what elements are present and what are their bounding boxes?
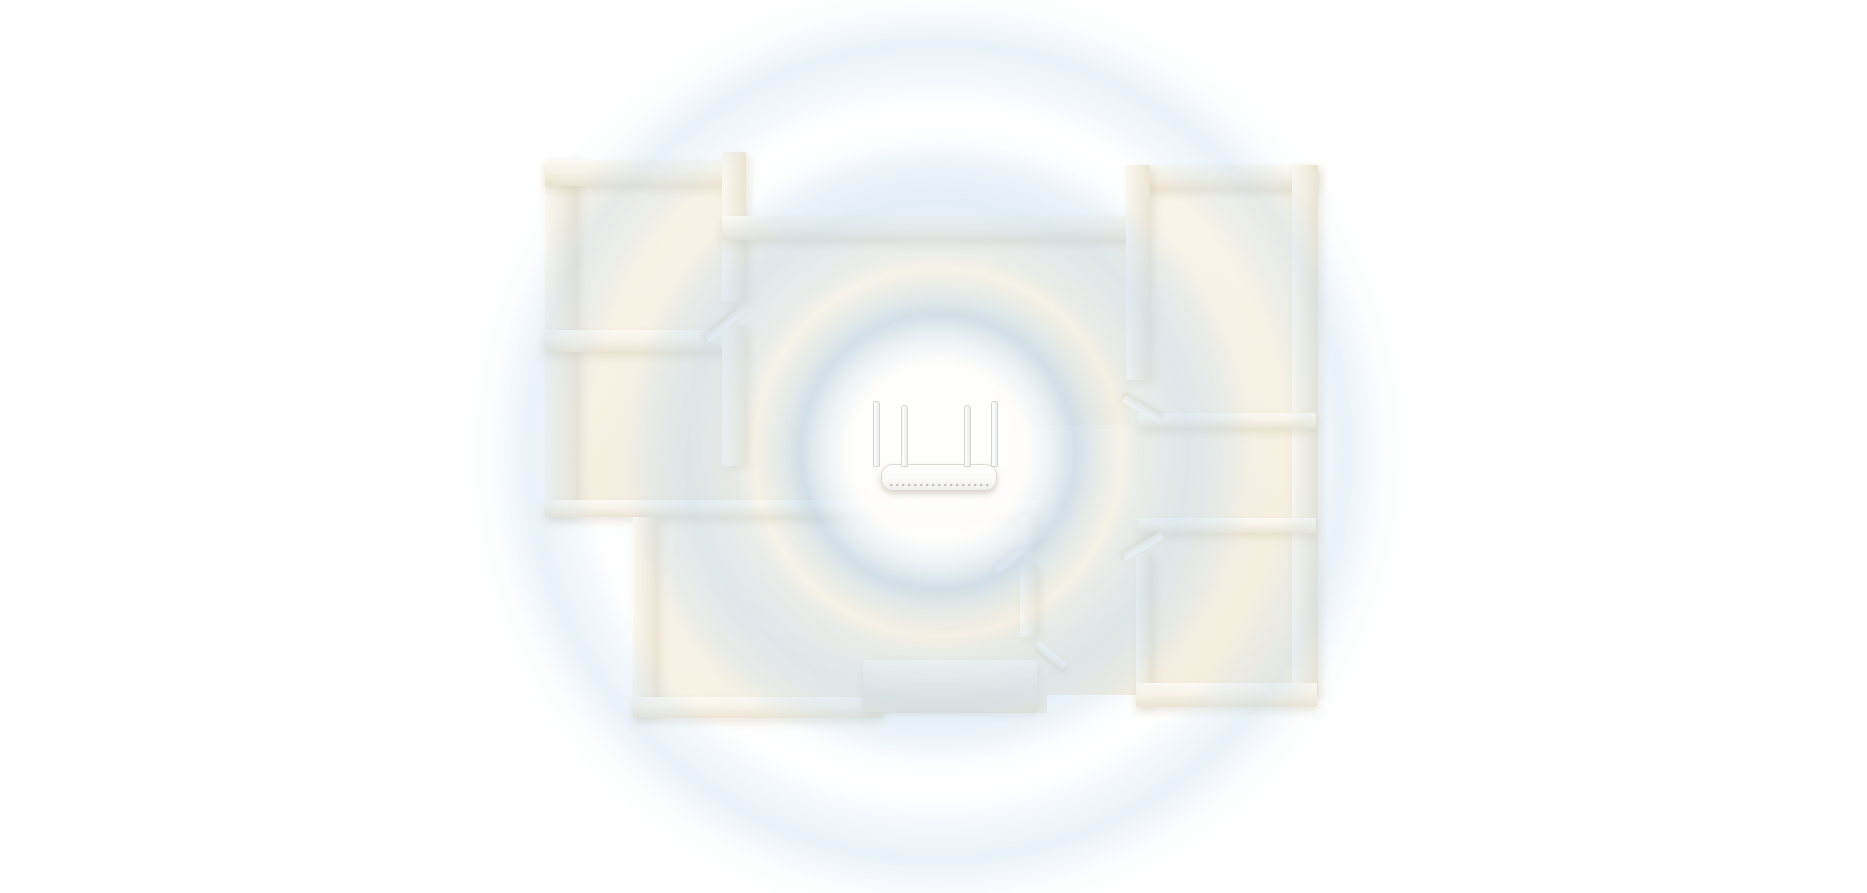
wall-bottom-center-vert-b bbox=[1020, 565, 1037, 637]
wall-right-divider-lower bbox=[1138, 518, 1316, 533]
router-antenna bbox=[873, 401, 880, 467]
wall-top-right-room-left bbox=[1126, 165, 1150, 380]
router-antenna bbox=[991, 401, 998, 467]
wall-bottom-center-vert-a bbox=[1020, 517, 1037, 545]
wall-outer-right bbox=[1292, 165, 1318, 697]
router-vent-dots bbox=[889, 482, 989, 488]
wall-bottom-left-room-bottom bbox=[633, 697, 883, 718]
wall-right-divider-upper bbox=[1138, 413, 1316, 428]
router-antenna bbox=[964, 405, 971, 467]
wall-bottom-center-block bbox=[863, 660, 1037, 712]
router-coverage-illustration bbox=[0, 0, 1867, 893]
router-body bbox=[881, 464, 997, 491]
router-antenna bbox=[901, 405, 908, 467]
wall-center-vertical-lower bbox=[722, 326, 746, 466]
floor-rooms-right-column bbox=[1130, 175, 1310, 695]
wall-middle-horizontal bbox=[545, 500, 1037, 517]
wifi-router bbox=[881, 395, 995, 495]
wall-top-left-room-top bbox=[545, 160, 725, 186]
wall-top-right-room-top bbox=[1138, 165, 1318, 189]
wall-bottom-right-room-bottom bbox=[1136, 683, 1317, 707]
wall-bottom-left-room-left bbox=[633, 517, 657, 717]
wall-center-room-top bbox=[722, 216, 1142, 240]
